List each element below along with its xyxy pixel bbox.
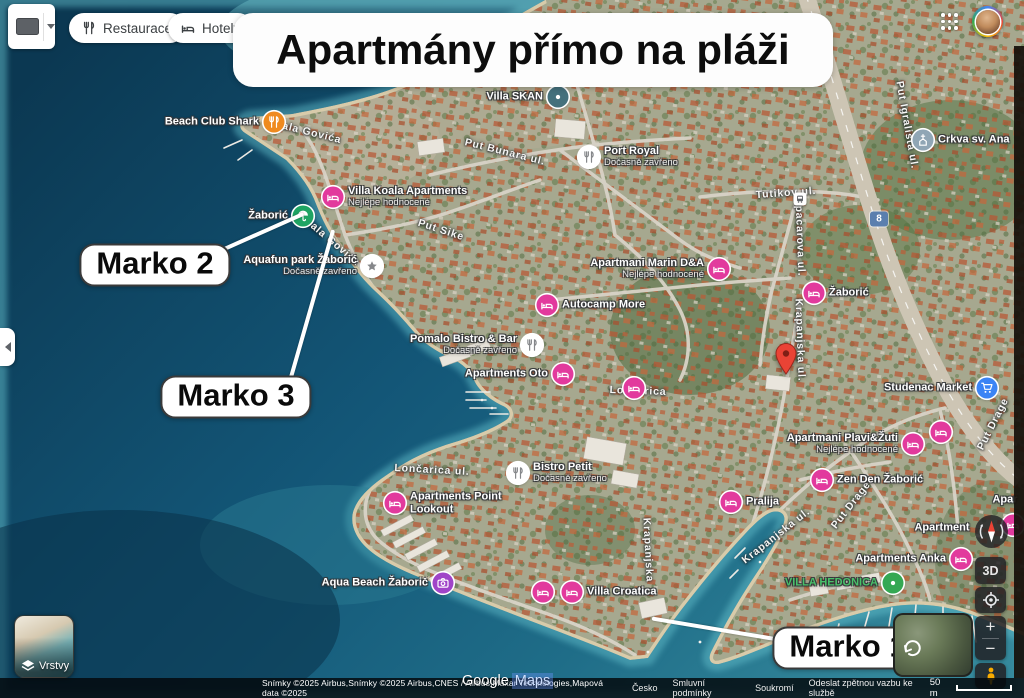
link-privacy[interactable]: Soukromí (755, 683, 794, 693)
bed-icon[interactable] (812, 470, 833, 491)
street-label-put-sike: Put Sike (416, 217, 465, 243)
dot-icon[interactable] (883, 573, 904, 594)
layers-icon (21, 659, 35, 672)
poi-label-aqua-beach-zaboric[interactable]: Aqua Beach Žaborič (322, 577, 428, 590)
poi-label-autocamp-more[interactable]: Autocamp More (562, 299, 645, 312)
street-label-put-bunara-ul: Put Bunara ul. (464, 136, 547, 168)
zoom-in-button[interactable]: + (975, 616, 1006, 638)
street-view-thumbnail[interactable] (893, 613, 973, 677)
camera-icon[interactable] (433, 573, 454, 594)
map-scale: 50 m (930, 677, 1012, 698)
dropped-pin-icon[interactable] (774, 343, 798, 380)
right-edge-band (1014, 46, 1024, 678)
3d-button-label: 3D (983, 564, 999, 578)
restaurant-icon (82, 21, 96, 35)
poi-label-villa-skan[interactable]: Villa SKAN (486, 91, 543, 104)
cart-icon[interactable] (977, 378, 998, 399)
zoom-in-label: + (986, 617, 996, 637)
zoom-out-label: − (986, 639, 996, 659)
street-label-put-drage: Put Drage (975, 396, 1011, 452)
poi-label-pralija[interactable]: Pralija (746, 496, 779, 509)
divider (43, 13, 44, 41)
callout-marko-3: Marko 3 (160, 376, 311, 419)
google-apps-grid-icon[interactable] (941, 13, 958, 30)
bed-icon[interactable] (553, 364, 574, 385)
poi-label-apartment[interactable]: Apartment (914, 522, 969, 535)
bed-icon[interactable] (533, 582, 554, 603)
bed-icon[interactable] (385, 493, 406, 514)
compass-control[interactable] (974, 514, 1009, 549)
avatar-photo (976, 10, 1000, 34)
street-label-krapanjska-ul: Krapanjska ul. (740, 506, 813, 567)
layers-label: Vrstvy (39, 660, 69, 672)
street-label-tutikov-ul: Tutikov ul. (755, 185, 816, 201)
church-icon[interactable] (913, 130, 934, 151)
dot-icon[interactable] (548, 87, 569, 108)
bed-icon[interactable] (323, 187, 344, 208)
street-label-loncarica-ul: Lončarica ul. (394, 462, 470, 478)
street-label-put-igralista-ul: Put Igrališta ul. (893, 80, 920, 170)
layers-button[interactable]: Vrstvy (14, 615, 74, 678)
filter-chip-label: Restaurace (103, 21, 172, 36)
link-feedback[interactable]: Odeslat zpětnou vazbu ke službě (809, 678, 930, 698)
poi-label-beach-club-shark[interactable]: Beach Club Shark (165, 116, 259, 129)
poi-label-villa-hedonica[interactable]: VILLA HEDONICA (785, 577, 878, 590)
bed-icon[interactable] (624, 378, 645, 399)
restaurant-icon[interactable] (579, 147, 600, 168)
street-label-spacarova-ul: Spacarova ul. (793, 197, 808, 276)
link-country[interactable]: Česko (632, 683, 658, 693)
zoom-control: + − (975, 616, 1006, 660)
star-icon[interactable] (362, 256, 383, 277)
chevron-down-icon (47, 24, 55, 29)
title-banner: Apartmány přímo na pláži (233, 13, 833, 87)
poi-label-zaboric[interactable]: Žaborić (829, 287, 869, 300)
banner-title: Apartmány přímo na pláži (276, 26, 789, 74)
bed-icon[interactable] (709, 259, 730, 280)
keyboard-icon (16, 18, 39, 35)
watermark-maps: Maps (512, 673, 553, 689)
poi-label-apartmani-marin-d-a[interactable]: Apartmani Marin D&ANejlépe hodnocené (590, 257, 704, 281)
account-avatar[interactable] (972, 6, 1003, 37)
street-label-krapanjska: Krapanjska (640, 517, 655, 582)
restaurant-icon[interactable] (264, 112, 285, 133)
poi-label-aquafun-park-zaboric[interactable]: Aquafun park ŽaborićDočasně zavřeno (243, 254, 357, 278)
hotel-icon (181, 21, 195, 35)
restaurant-icon[interactable] (508, 463, 529, 484)
bed-icon[interactable] (721, 492, 742, 513)
map-overlay: Obala GovićaPut Bunara ul.Put SikeObala … (0, 0, 1024, 698)
bed-icon[interactable] (537, 295, 558, 316)
imagery-attribution: Snímky ©2025 Airbus,Snímky ©2025 Airbus,… (262, 678, 617, 698)
poi-label-villa-koala-apartments[interactable]: Villa Koala ApartmentsNejlépe hodnocené (348, 185, 467, 209)
poi-label-zen-den-zaboric[interactable]: Zen Den Žaborić (837, 474, 923, 487)
poi-label-apartments-oto[interactable]: Apartments Oto (465, 368, 548, 381)
poi-label-port-royal[interactable]: Port RoyalDočasně zavřeno (604, 145, 678, 169)
bed-icon[interactable] (562, 582, 583, 603)
my-location-button[interactable] (975, 587, 1006, 613)
chevron-left-icon (5, 342, 11, 352)
bus-stop-icon[interactable] (794, 193, 807, 206)
link-terms[interactable]: Smluvní podmínky (672, 678, 740, 698)
zoom-out-button[interactable]: − (975, 639, 1006, 661)
3d-view-button[interactable]: 3D (975, 557, 1006, 584)
callout-marko-2: Marko 2 (79, 244, 230, 287)
bed-icon[interactable] (931, 422, 952, 443)
poi-label-villa-croatica[interactable]: Villa Croatica (587, 586, 657, 599)
callout-line-marko-1 (652, 617, 791, 643)
poi-label-pomalo-bistro-bar[interactable]: Pomalo Bistro & BarDočasně zavřeno (410, 333, 517, 357)
bed-icon[interactable] (804, 283, 825, 304)
callout-line-marko-3 (288, 230, 334, 381)
input-selector-widget[interactable] (8, 4, 55, 49)
restaurant-icon[interactable] (522, 335, 543, 356)
google-maps-watermark: GoogleMaps (462, 673, 553, 689)
street-label-put-drage: Put Drage (829, 479, 873, 531)
rotate-view-icon (901, 637, 923, 657)
poi-label-apartments-point-lookout[interactable]: Apartments Point Lookout (410, 490, 508, 515)
scale-label: 50 m (930, 677, 949, 698)
bed-icon[interactable] (903, 434, 924, 455)
poi-label-crkva-sv-ana[interactable]: Crkva sv. Ana (938, 134, 1010, 147)
side-panel-collapse-tab[interactable] (0, 328, 15, 366)
poi-label-bistro-petit[interactable]: Bistro PetitDočasně zavřeno (533, 461, 607, 485)
poi-label-apartmani-plavi-zuti[interactable]: Apartmani Plavi&ŽutiNejlépe hodnocené (787, 432, 898, 456)
route-shield-8: 8 (870, 212, 888, 227)
google-maps-satellite-view: Obala GovićaPut Bunara ul.Put SikeObala … (0, 0, 1024, 698)
my-location-icon (982, 591, 1000, 609)
bed-icon[interactable] (951, 549, 972, 570)
poi-label-studenac-market[interactable]: Studenac Market (884, 382, 972, 395)
watermark-google: Google (462, 673, 509, 689)
scale-bar (956, 685, 1012, 691)
poi-label-apartments-anka[interactable]: Apartments Anka (855, 553, 946, 566)
